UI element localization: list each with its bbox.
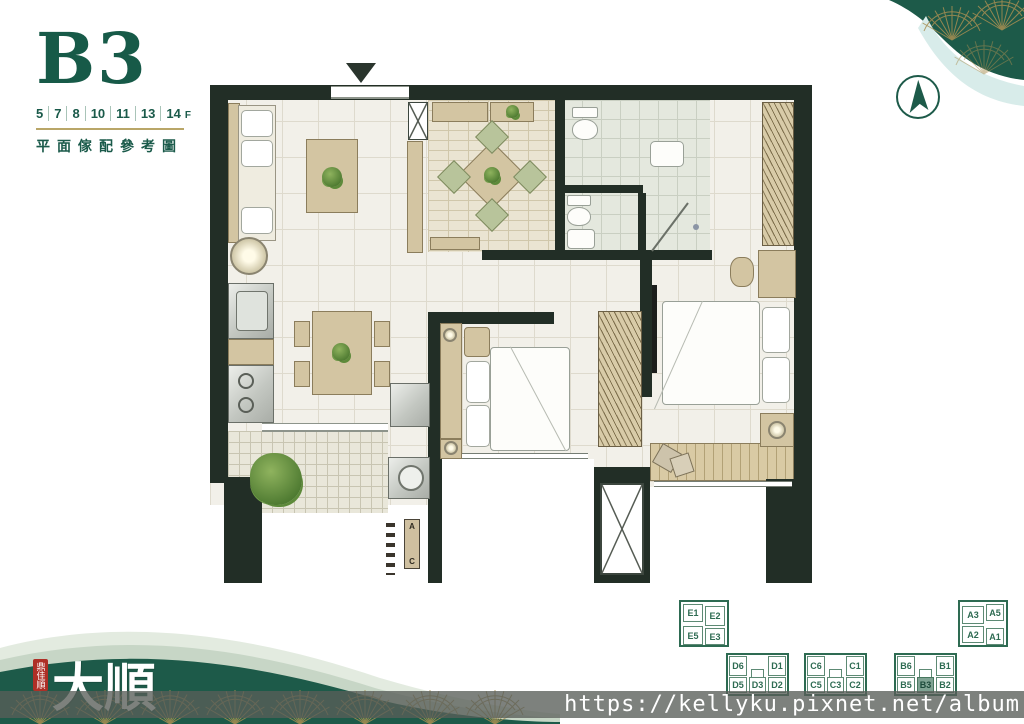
washing-machine-door bbox=[398, 465, 424, 491]
brochure-page: B3 5 7 8 10 11 13 14 F 平面傢配參考圖 bbox=[0, 0, 1024, 724]
round-side-table bbox=[230, 237, 268, 275]
pipe-shaft bbox=[408, 102, 428, 140]
watermark-bar: https://kellyku.pixnet.net/album bbox=[0, 691, 1024, 718]
unit-cell-label: A2 bbox=[967, 630, 979, 640]
shower-door bbox=[648, 199, 710, 255]
unit-cell-label: C2 bbox=[849, 680, 861, 690]
bedroom2-lamp bbox=[443, 328, 457, 342]
unit-cell-label: C3 bbox=[830, 680, 842, 690]
master-vanity bbox=[758, 250, 796, 298]
watermark-url: https://kellyku.pixnet.net/album bbox=[564, 692, 1024, 717]
wall-shower-divider bbox=[638, 193, 646, 260]
bedroom2-stool bbox=[464, 327, 490, 357]
plan-header: B3 5 7 8 10 11 13 14 F 平面傢配參考圖 bbox=[36, 16, 226, 156]
toilet-bowl bbox=[572, 119, 598, 140]
unit-cell-label: B3 bbox=[920, 680, 932, 690]
floor-number: 13 bbox=[135, 106, 155, 121]
unit-code: B3 bbox=[36, 16, 226, 102]
floor-number: 10 bbox=[85, 106, 105, 121]
sofa-cushion bbox=[241, 110, 273, 137]
sofa-cushion bbox=[241, 140, 273, 167]
floor-number: 8 bbox=[66, 106, 79, 121]
dining-plant bbox=[332, 343, 350, 361]
unit-cell: E1 bbox=[683, 604, 703, 622]
table-plant bbox=[484, 167, 500, 183]
structural-shaft bbox=[600, 483, 644, 575]
unit-cell: B6 bbox=[897, 656, 915, 676]
unit-cell-label: D2 bbox=[771, 680, 783, 690]
unit-cell: B1 bbox=[936, 656, 954, 676]
unit-map-e: E1 E2 E5 E3 bbox=[679, 600, 729, 647]
exterior-gap bbox=[650, 487, 766, 583]
wall-left bbox=[210, 100, 228, 483]
unit-cell: A3 bbox=[962, 606, 984, 624]
bedroom2-nightstand-lamp bbox=[444, 441, 458, 455]
floor-number: 14 bbox=[160, 106, 180, 121]
unit-cell-label: E1 bbox=[687, 608, 698, 618]
unit-cell-label: B5 bbox=[900, 680, 912, 690]
ac-label-top: A bbox=[409, 522, 415, 531]
entry-door bbox=[331, 86, 409, 99]
dining-chair bbox=[374, 361, 390, 387]
north-compass-icon bbox=[895, 74, 941, 120]
unit-cell-label: D5 bbox=[732, 680, 744, 690]
master-nightstand-lamp bbox=[768, 421, 786, 439]
wall-multipurpose-bottom bbox=[482, 250, 555, 260]
unit-map-b: B6 B1 B5 B3 B2 bbox=[894, 653, 957, 696]
unit-cell: E2 bbox=[705, 606, 725, 626]
unit-cell: A1 bbox=[986, 628, 1004, 645]
unit-cell-label: B1 bbox=[939, 661, 951, 671]
unit-cell-label: E2 bbox=[709, 611, 720, 621]
unit-cell-label: D1 bbox=[771, 661, 783, 671]
ac-unit: A C bbox=[404, 519, 420, 569]
unit-map-a: A3 A5 A2 A1 bbox=[958, 600, 1008, 647]
master-pillow bbox=[762, 357, 790, 403]
balcony-sliding-door bbox=[262, 423, 388, 432]
ac-label-bottom: C bbox=[409, 557, 415, 566]
floor-suffix: F bbox=[185, 110, 191, 121]
unit-cell: D6 bbox=[729, 656, 747, 676]
gold-divider bbox=[36, 128, 184, 130]
master-window bbox=[654, 481, 792, 487]
unit-cell: D1 bbox=[768, 656, 786, 676]
dining-chair bbox=[294, 321, 310, 347]
master-wardrobe bbox=[762, 102, 794, 246]
toilet-tank bbox=[572, 107, 598, 118]
sofa-cushion bbox=[241, 207, 273, 234]
unit-cell-label: D3 bbox=[752, 680, 764, 690]
corridor-wardrobe bbox=[598, 311, 642, 447]
entrance-arrow-icon bbox=[346, 63, 376, 83]
unit-cell-label: A1 bbox=[989, 632, 1001, 642]
kitchen-sink-basin bbox=[236, 291, 268, 331]
kitchen-counter bbox=[228, 339, 274, 365]
ladder-symbol bbox=[386, 523, 395, 575]
sideboard-cabinet bbox=[390, 383, 430, 427]
unit-cell: A5 bbox=[986, 604, 1004, 621]
unit-cell-label: D6 bbox=[732, 661, 744, 671]
coffee-table-plant bbox=[322, 167, 342, 187]
cabinet-flower bbox=[506, 105, 519, 118]
unit-cell-label: A5 bbox=[989, 608, 1001, 618]
floor-number: 11 bbox=[110, 106, 130, 121]
unit-cell-label: A3 bbox=[967, 610, 979, 620]
unit-cell: E3 bbox=[705, 628, 725, 645]
floor-plan: A C bbox=[210, 85, 812, 583]
unit-cell-label: C5 bbox=[810, 680, 822, 690]
wall-bath-divider bbox=[565, 185, 643, 193]
stove-burner bbox=[238, 373, 254, 389]
kitchen-stove bbox=[228, 365, 274, 423]
brand-seal: 鼎佳順 bbox=[33, 659, 48, 691]
multipurpose-cabinet bbox=[432, 102, 488, 122]
vanity-stool bbox=[730, 257, 754, 287]
master-tv-panel bbox=[652, 285, 657, 373]
unit-cell-label: B6 bbox=[900, 661, 912, 671]
wall-bath-left bbox=[555, 100, 565, 260]
bathroom-sink bbox=[650, 141, 684, 167]
unit-map-d: D6 D1 D5 D3 D2 bbox=[726, 653, 789, 696]
unit-cell: E5 bbox=[683, 626, 703, 645]
exterior-gap bbox=[442, 459, 594, 583]
bedroom2-pillow bbox=[466, 405, 490, 447]
unit-cell: C6 bbox=[807, 656, 825, 676]
bedroom2-pillow bbox=[466, 361, 490, 403]
plan-subtitle: 平面傢配參考圖 bbox=[36, 136, 226, 156]
wall-top bbox=[210, 85, 812, 100]
toilet-bowl bbox=[567, 207, 591, 226]
master-pillow bbox=[762, 307, 790, 353]
wall-right bbox=[794, 100, 812, 480]
unit-cell-label: C6 bbox=[810, 661, 822, 671]
entry-shoe-cabinet bbox=[407, 141, 423, 253]
multipurpose-low-cabinet bbox=[430, 237, 480, 250]
unit-cell-label: E5 bbox=[687, 631, 698, 641]
bedroom2-window bbox=[450, 453, 588, 459]
floor-number: 5 bbox=[36, 106, 43, 121]
floor-list: 5 7 8 10 11 13 14 F bbox=[36, 106, 226, 121]
stove-burner bbox=[238, 397, 254, 413]
toilet-tank bbox=[567, 195, 591, 206]
unit-cell-label: E3 bbox=[709, 632, 720, 642]
unit-cell-label: C1 bbox=[849, 661, 861, 671]
dining-chair bbox=[374, 321, 390, 347]
floor-number: 7 bbox=[48, 106, 61, 121]
unit-cell-label: B2 bbox=[939, 680, 951, 690]
unit-cell: A2 bbox=[962, 626, 984, 643]
dining-chair bbox=[294, 361, 310, 387]
balcony-plant bbox=[250, 453, 302, 505]
master-bed bbox=[662, 301, 760, 405]
unit-cell: C1 bbox=[846, 656, 864, 676]
bathroom-sink bbox=[567, 229, 595, 249]
unit-map-c: C6 C1 C5 C3 C2 bbox=[804, 653, 867, 696]
column-bottom-right bbox=[766, 479, 812, 583]
